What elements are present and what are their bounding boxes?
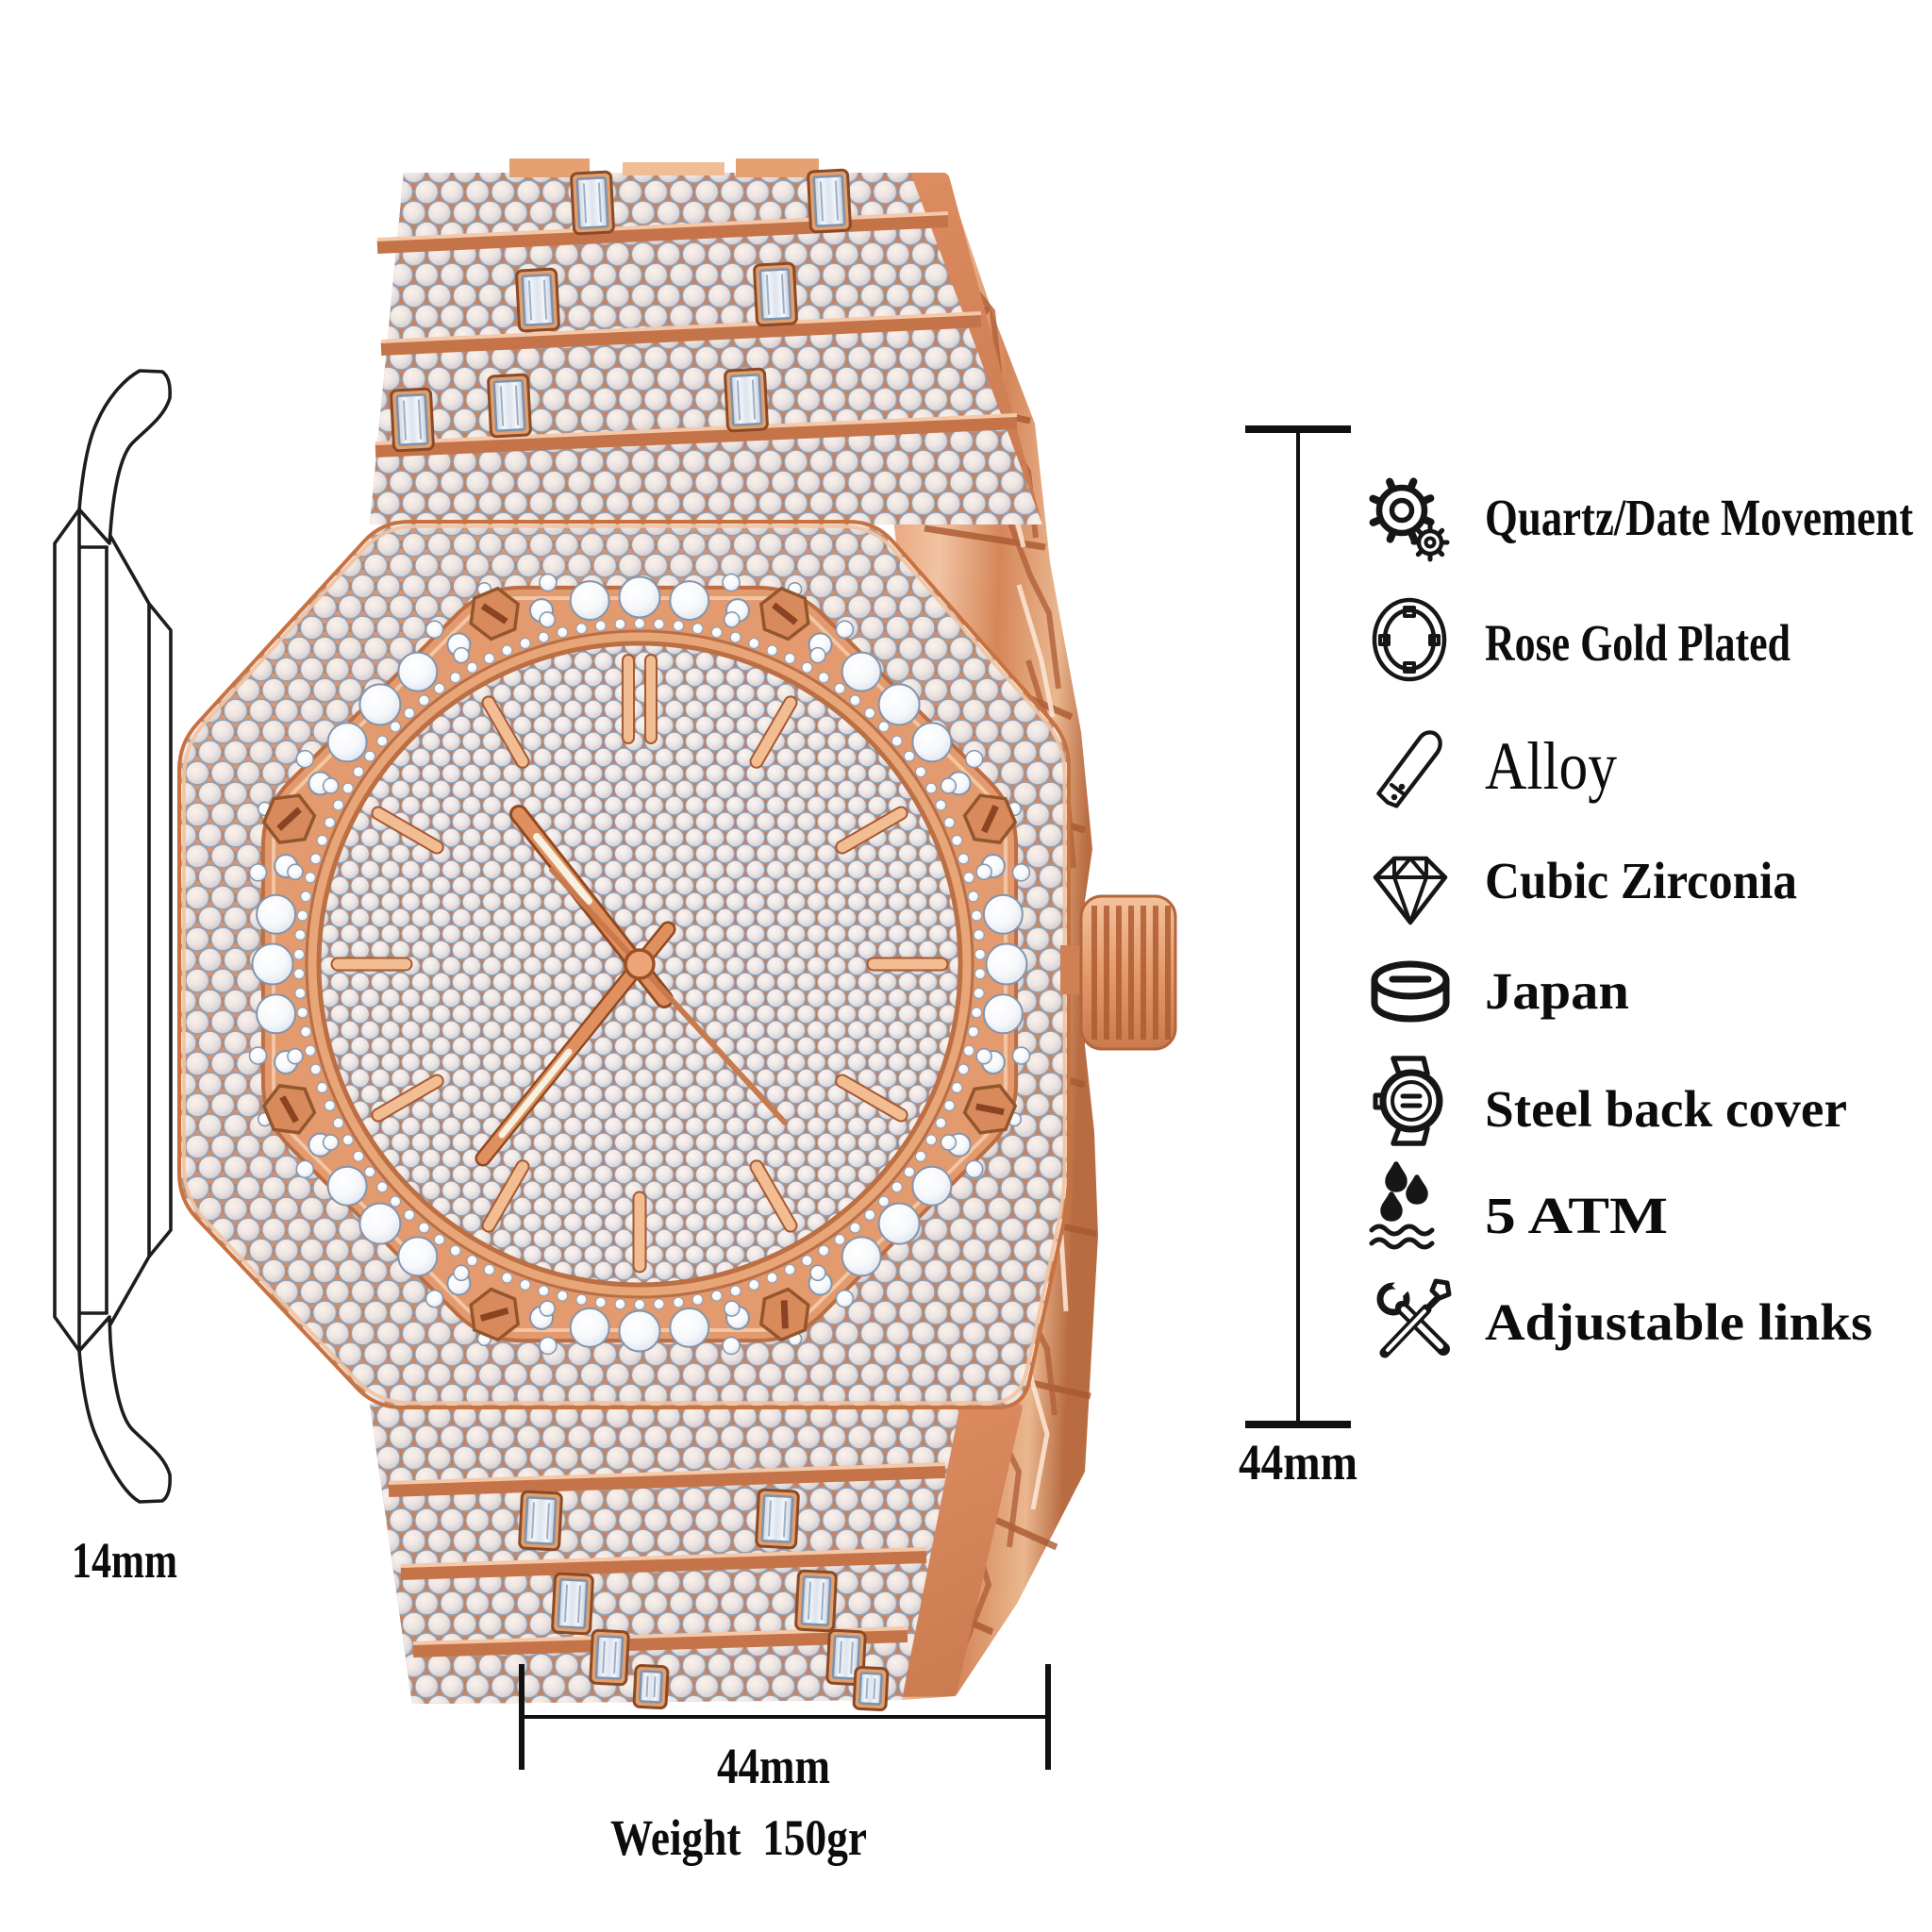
svg-text:14mm: 14mm — [72, 1532, 177, 1589]
svg-text:Weight 150gr: Weight 150gr — [610, 1809, 867, 1866]
svg-text:Quartz/Date Movement: Quartz/Date Movement — [1485, 489, 1914, 546]
svg-text:Rose Gold Plated: Rose Gold Plated — [1485, 614, 1790, 672]
svg-text:Cubic Zirconia: Cubic Zirconia — [1485, 852, 1797, 909]
svg-text:5 ATM: 5 ATM — [1485, 1187, 1668, 1244]
svg-text:Steel back cover: Steel back cover — [1485, 1080, 1847, 1138]
svg-text:44mm: 44mm — [717, 1738, 830, 1794]
svg-text:Alloy: Alloy — [1485, 728, 1617, 804]
svg-text:Japan: Japan — [1485, 962, 1629, 1020]
svg-text:44mm: 44mm — [1239, 1434, 1357, 1491]
svg-text:Adjustable links: Adjustable links — [1485, 1293, 1873, 1351]
